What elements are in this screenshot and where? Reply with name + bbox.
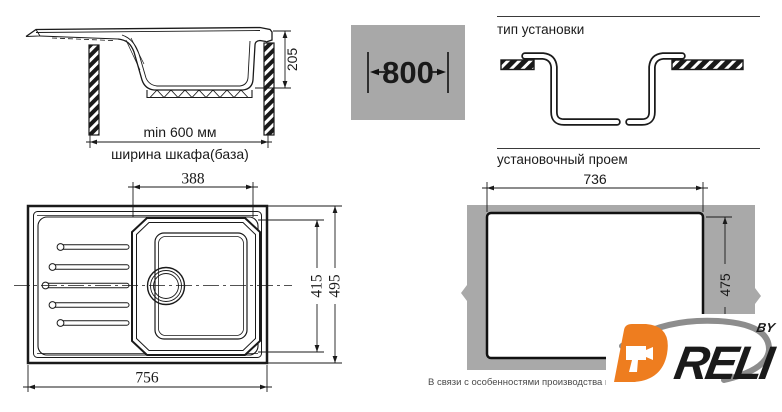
countertop-right — [672, 60, 743, 70]
cabinet-wall-right — [264, 43, 274, 135]
cabinet-base-label: ширина шкафа(база) — [111, 146, 249, 162]
logo-brand-text: RELI — [671, 337, 779, 390]
sink-channel — [525, 56, 682, 122]
logo-byline: BY — [755, 320, 777, 335]
top-view-drawing: 388 415 495 756 — [0, 168, 360, 412]
drainboard-ridges — [42, 244, 129, 327]
bowl-depth-dim: 415 — [309, 274, 326, 298]
installation-type-title: тип установки — [497, 22, 584, 37]
side-depth-dim: 205 — [284, 48, 300, 72]
cabinet-wall-left — [89, 45, 99, 135]
overall-width-dim: 756 — [135, 370, 159, 387]
opening-height-dim: 475 — [717, 273, 733, 297]
mounting-opening-title: установочный проем — [497, 152, 628, 167]
badge-value: 800 — [382, 55, 434, 90]
cabinet-size-badge: 800 — [351, 25, 465, 120]
installation-cross-section — [495, 42, 765, 137]
side-view-drawing: 205 min 600 мм ширина шкафа(база) — [10, 14, 310, 164]
sink-profile — [26, 28, 274, 136]
cabinet-min-width-label: min 600 мм — [144, 124, 217, 140]
opening-width-dim: 736 — [583, 171, 607, 187]
spec-sheet: 205 min 600 мм ширина шкафа(база) 800 — [0, 0, 782, 412]
brand-logo: RELI BY — [606, 314, 782, 390]
overall-depth-dim: 495 — [327, 274, 344, 298]
divider-top — [497, 16, 760, 17]
divider-middle — [497, 148, 760, 149]
countertop-left — [501, 60, 534, 70]
bowl-width-dim: 388 — [181, 171, 205, 188]
